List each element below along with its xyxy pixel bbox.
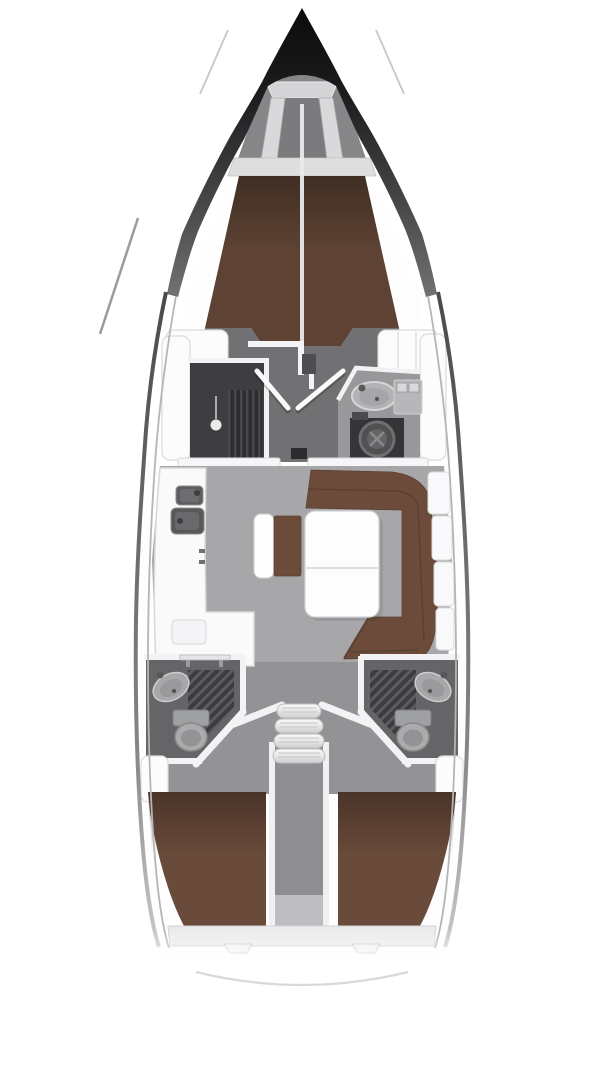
- hanging-locker-stripes: [228, 390, 262, 460]
- salon-table: [305, 511, 379, 617]
- hull-shelf: [432, 516, 452, 560]
- hull-shelf: [436, 608, 454, 650]
- center-bench: [254, 514, 301, 578]
- round-appliance: [350, 412, 404, 460]
- wardrobe-wall-top: [188, 358, 268, 363]
- bench-base: [254, 514, 274, 578]
- toilet: [395, 710, 431, 751]
- shroud-line-port: [100, 218, 138, 334]
- head-wall-top: [360, 654, 460, 660]
- corridor-wall-port: [269, 742, 275, 926]
- corridor-end-light: [275, 895, 323, 926]
- hull-shelf: [434, 562, 454, 606]
- cabin-door-sill: [291, 448, 307, 459]
- chart-table-leg: [219, 660, 223, 667]
- bow-rail-port: [200, 30, 228, 94]
- berth-shade: [148, 792, 266, 856]
- faucet: [441, 672, 448, 679]
- sink-faucet: [177, 518, 183, 524]
- sink-faucet: [194, 490, 200, 496]
- faucet: [157, 672, 164, 679]
- bow-rail-starboard: [376, 30, 404, 94]
- berth-shade: [338, 792, 456, 856]
- corridor-wall-starboard: [323, 742, 329, 926]
- cabin-wall: [248, 341, 302, 347]
- anchor-locker: [266, 82, 338, 98]
- cabin-lamp: [211, 420, 222, 431]
- yacht-floor-plan: [0, 0, 608, 1080]
- drain: [428, 689, 432, 693]
- drain: [375, 397, 379, 401]
- faucet: [359, 385, 366, 392]
- drain: [172, 689, 176, 693]
- chart-table: [180, 655, 230, 660]
- worktop-inset: [172, 620, 206, 644]
- head-wall-inner: [358, 656, 364, 714]
- hull-shelf: [428, 472, 450, 514]
- counter-fitting: [199, 549, 205, 553]
- forward-head: [338, 368, 422, 462]
- counter-fitting: [199, 560, 205, 564]
- stern-fade: [110, 930, 500, 1030]
- toilet: [173, 710, 209, 751]
- cabinet-door: [409, 383, 419, 392]
- wardrobe-wall-right: [264, 358, 269, 462]
- mast-post: [302, 354, 316, 374]
- head-wall-inner: [240, 656, 246, 714]
- mast-center-line: [300, 104, 304, 354]
- bench-cushion: [274, 516, 301, 576]
- chart-table-leg: [186, 660, 190, 667]
- cabinet-door: [397, 383, 407, 392]
